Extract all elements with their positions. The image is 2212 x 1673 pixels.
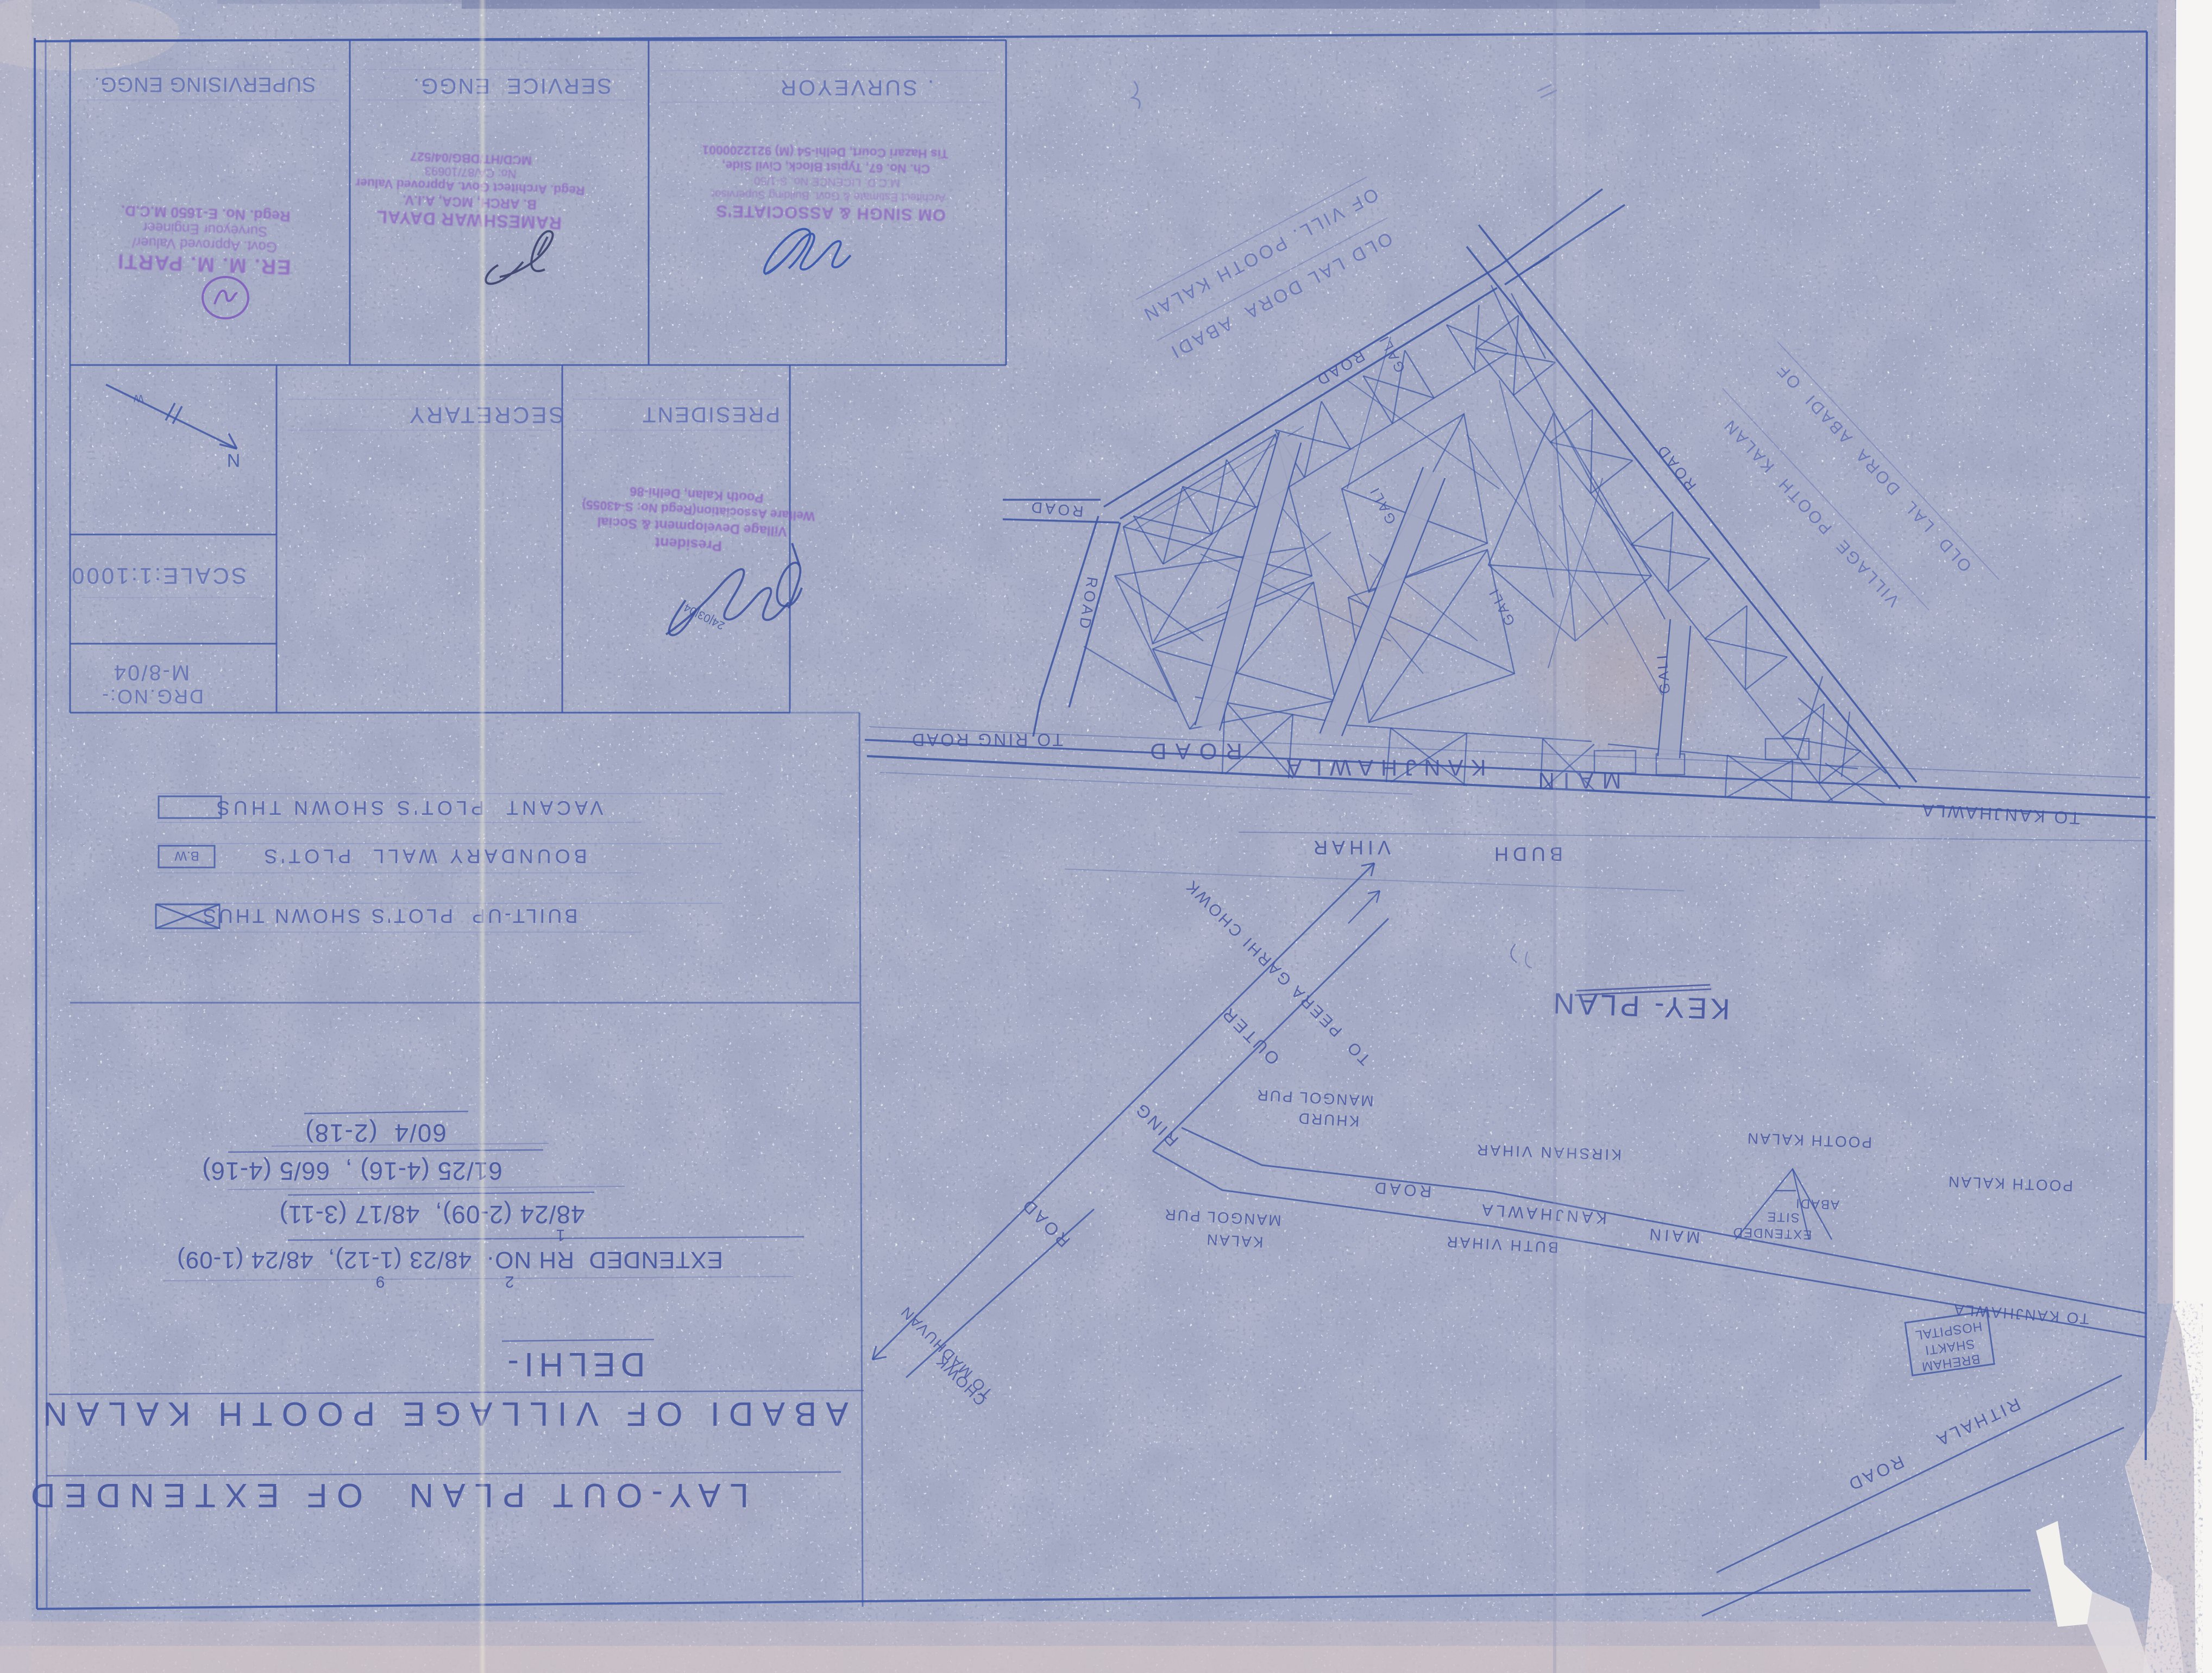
svg-text:EXTENDED: EXTENDED bbox=[1732, 1224, 1812, 1242]
svg-text:ABADI: ABADI bbox=[1795, 1196, 1840, 1212]
svg-text:EXTENDED RH NO· 48/23 (1-12): EXTENDED RH NO· 48/23 (1-12), 48/24 (1-0… bbox=[177, 1247, 723, 1273]
svg-text:48/24 (2-09), 48/17 (3-11): 48/24 (2-09), 48/17 (3-11) bbox=[279, 1200, 585, 1229]
svg-text:B.W: B.W bbox=[174, 848, 199, 863]
svg-text:N: N bbox=[227, 450, 241, 470]
svg-text:w: w bbox=[133, 392, 144, 408]
svg-text:KALAN: KALAN bbox=[1205, 1231, 1264, 1251]
svg-text:DRG.NO:-: DRG.NO:- bbox=[100, 685, 204, 708]
svg-text:M.C.D. LICENCE No. S-1/50: M.C.D. LICENCE No. S-1/50 bbox=[754, 174, 900, 190]
svg-text:BUILT-UP PLOT'S SHOWN THUS: BUILT-UP PLOT'S SHOWN THUS bbox=[200, 905, 578, 927]
svg-text:. SURVEYOR: . SURVEYOR bbox=[778, 76, 934, 99]
svg-text:61/25 (4-16) , 66/5 (4-16): 61/25 (4-16) , 66/5 (4-16) bbox=[202, 1157, 502, 1185]
svg-text:BUDH: BUDH bbox=[1490, 843, 1563, 865]
svg-text:9: 9 bbox=[376, 1273, 385, 1291]
svg-text:PRESIDENT: PRESIDENT bbox=[641, 402, 780, 426]
svg-text:LAY-OUT PLAN OF EXTENDED: LAY-OUT PLAN OF EXTENDED bbox=[22, 1476, 749, 1514]
svg-text:SITE: SITE bbox=[1766, 1209, 1800, 1225]
svg-text:SUPERVISING ENGG.: SUPERVISING ENGG. bbox=[93, 73, 316, 96]
svg-text:KHURD: KHURD bbox=[1297, 1110, 1360, 1130]
svg-text:OM SINGH & ASSOCIATE'S: OM SINGH & ASSOCIATE'S bbox=[715, 202, 946, 224]
svg-text:ROAD: ROAD bbox=[1141, 739, 1242, 764]
svg-text:BOUNDARY WALL PLOT'S: BOUNDARY WALL PLOT'S bbox=[260, 845, 587, 867]
svg-text:VIHAR: VIHAR bbox=[1309, 836, 1391, 859]
svg-text:SERVICE ENGG.: SERVICE ENGG. bbox=[412, 74, 612, 98]
svg-text:DELHI-: DELHI- bbox=[502, 1345, 645, 1383]
svg-text:ABADI OF VILLAGE POOTH KALAN: ABADI OF VILLAGE POOTH KALAN bbox=[34, 1395, 848, 1432]
svg-text:2: 2 bbox=[505, 1273, 514, 1291]
svg-text:M-8/04: M-8/04 bbox=[112, 661, 190, 684]
svg-text:SCALE:1:1000: SCALE:1:1000 bbox=[70, 563, 247, 589]
svg-text:TO RING ROAD: TO RING ROAD bbox=[910, 730, 1063, 750]
svg-text:MAIN: MAIN bbox=[1646, 1225, 1701, 1247]
svg-text:1: 1 bbox=[556, 1226, 565, 1244]
svg-text:VACANT PLOT'S SHOWN THUS: VACANT PLOT'S SHOWN THUS bbox=[213, 797, 604, 819]
svg-text:60/4 (2-18): 60/4 (2-18) bbox=[304, 1119, 447, 1147]
